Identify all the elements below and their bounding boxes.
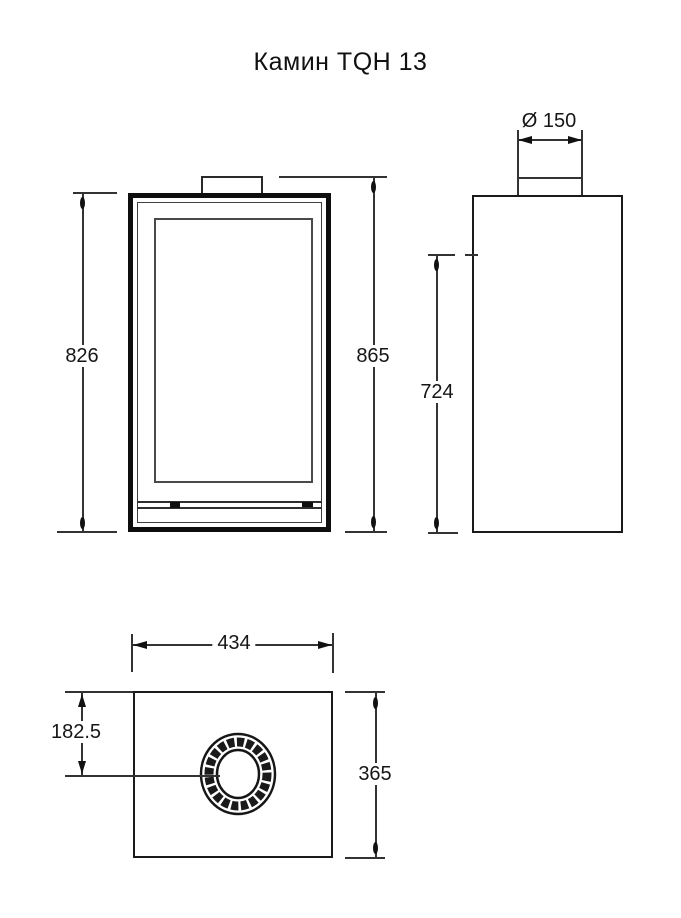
side-flue-collar-line <box>517 177 583 179</box>
extension-line <box>332 633 334 673</box>
arrow-mark <box>78 694 86 707</box>
flue-center-leader-line <box>65 775 220 777</box>
extension-line <box>279 176 387 178</box>
arrow-mark <box>371 181 376 193</box>
arrow-mark <box>434 259 439 271</box>
extension-line <box>57 531 117 533</box>
arrow-mark <box>133 641 147 649</box>
arrow-mark <box>371 516 376 528</box>
dim-depth-label: 365 <box>353 763 396 785</box>
arrow-mark <box>568 136 582 144</box>
extension-line <box>131 634 133 672</box>
arrow-mark <box>518 136 532 144</box>
extension-line <box>345 857 385 859</box>
dim-side-height-label: 724 <box>415 381 458 403</box>
arrow-mark <box>373 697 378 709</box>
extension-line <box>345 531 387 533</box>
edge-tick <box>465 254 478 256</box>
dim-flue-diameter-label: Ø 150 <box>517 110 581 132</box>
arrow-mark <box>373 842 378 854</box>
extension-line <box>65 691 133 693</box>
side-body-outline <box>472 195 623 533</box>
extension-line <box>73 192 117 194</box>
dim-flue-offset-label: 182.5 <box>46 721 106 743</box>
front-glass-door <box>154 218 313 483</box>
arrow-mark <box>80 197 85 209</box>
arrow-mark <box>318 641 332 649</box>
arrow-mark <box>80 517 85 529</box>
arrow-mark <box>78 761 86 774</box>
arrow-mark <box>434 517 439 529</box>
drawing-title: Камин TQH 13 <box>0 48 681 77</box>
extension-line <box>428 254 455 256</box>
door-handle-mark <box>170 502 180 508</box>
dim-overall-height-label: 865 <box>351 345 394 367</box>
front-flue-stub <box>201 176 263 194</box>
dim-body-height-label: 826 <box>60 345 103 367</box>
extension-line <box>345 691 385 693</box>
dim-width-label: 434 <box>212 632 255 654</box>
front-bottom-trim <box>137 501 322 509</box>
drawing-canvas: Камин TQH 13 826 865 <box>0 0 681 918</box>
hinge-mark <box>302 502 313 507</box>
extension-line <box>428 532 458 534</box>
